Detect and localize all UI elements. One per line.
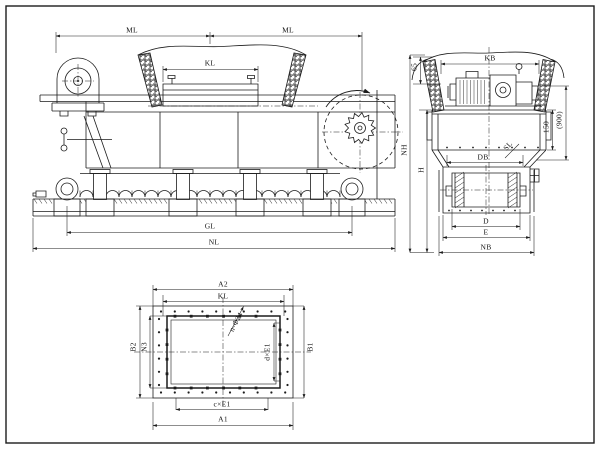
drive-sprocket <box>322 91 403 173</box>
drive-motor <box>445 64 541 107</box>
dim-db: DB <box>477 153 488 161</box>
inlet-hopper <box>138 45 318 107</box>
tail-pulley <box>52 58 112 168</box>
dim-kl-side: KL <box>205 59 216 67</box>
dim-nl: NL <box>209 238 220 246</box>
end-view <box>410 47 569 256</box>
dim-cxe1: c×E1 <box>213 400 230 408</box>
dim-b2: B2 <box>129 342 137 351</box>
support-legs <box>90 170 327 200</box>
dim-a2: A2 <box>218 280 228 288</box>
engineering-drawing <box>0 0 600 450</box>
dim-900: (900) <box>555 111 563 129</box>
plan-view-dimensions <box>136 285 304 430</box>
dim-h: H <box>417 167 425 173</box>
plan-view <box>134 285 311 430</box>
dim-ml-right: ML <box>282 26 294 34</box>
dim-nh: NH <box>400 144 408 155</box>
dim-n3: N3 <box>140 342 148 352</box>
discharge-drum <box>439 165 539 215</box>
dim-dxe1: d×E1 <box>263 343 271 361</box>
dim-a1: A1 <box>218 415 228 423</box>
dim-65: 65 <box>410 63 418 71</box>
dim-e: E <box>484 228 489 236</box>
dim-d: D <box>483 217 489 225</box>
dim-150: 150 <box>542 121 550 133</box>
drawing-sheet: ML ML KL GL NL KB 65 150 (900) SL DB NH … <box>0 0 600 450</box>
pedestal-blocks <box>54 199 365 216</box>
dim-ml-left: ML <box>126 26 138 34</box>
dim-kl-plan: KL <box>218 292 229 300</box>
dim-nb: NB <box>480 243 491 251</box>
dim-b1: B1 <box>306 342 314 351</box>
dim-kb: KB <box>484 54 495 62</box>
side-view <box>33 32 403 252</box>
chain-curtain <box>80 191 340 198</box>
dim-gl: GL <box>205 222 216 230</box>
